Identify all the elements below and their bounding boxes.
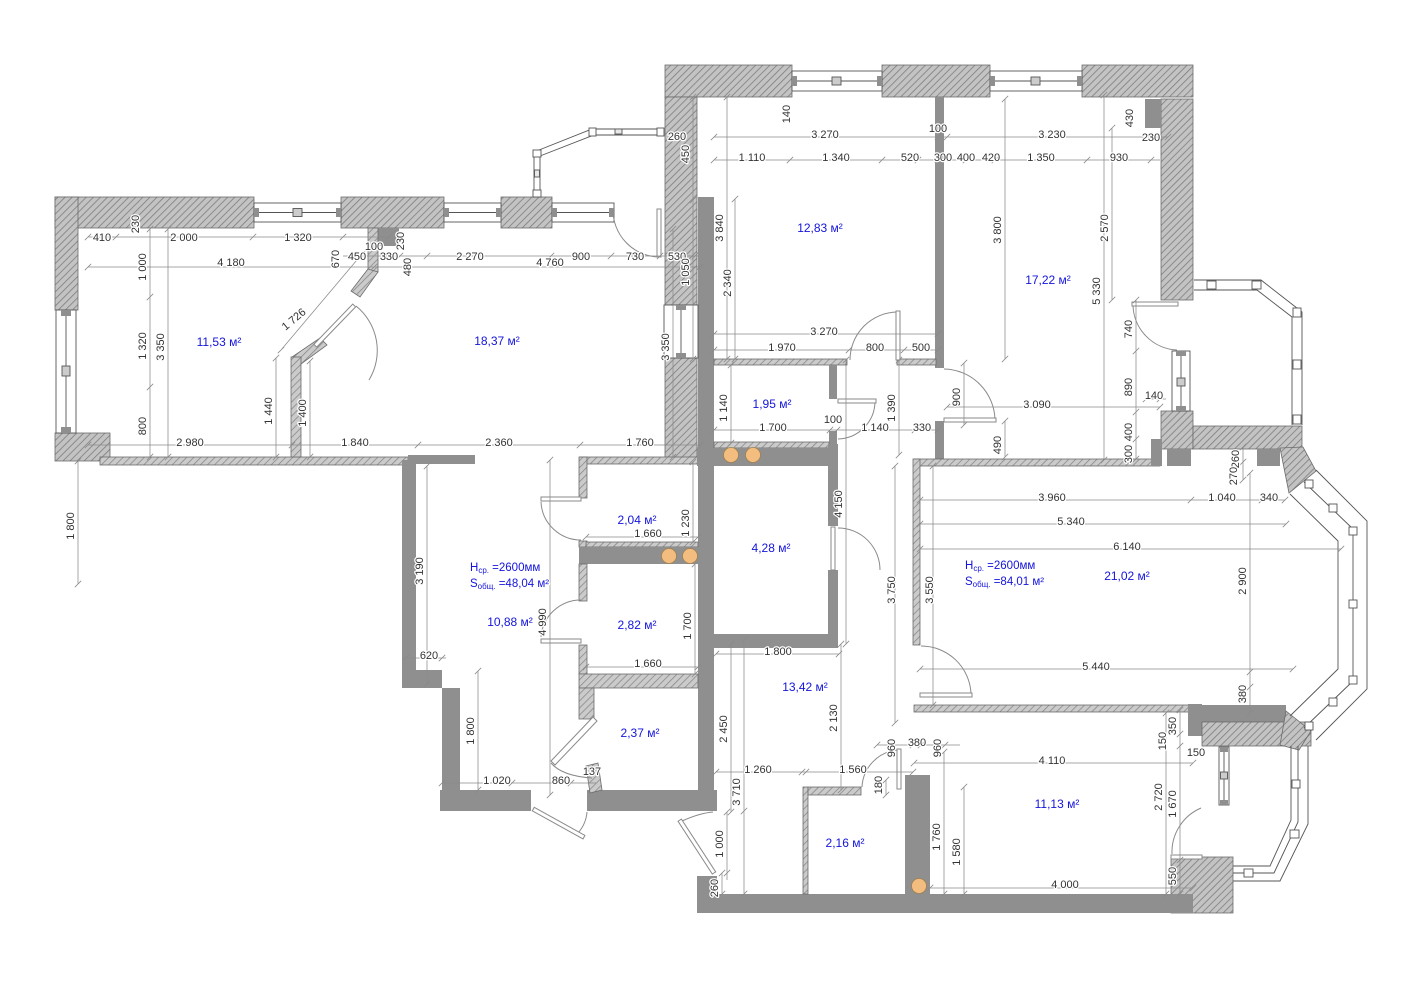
svg-text:900: 900	[572, 251, 590, 263]
svg-text:330: 330	[380, 251, 398, 263]
svg-text:930: 930	[1110, 152, 1128, 164]
svg-text:2 980: 2 980	[176, 437, 204, 449]
svg-text:330: 330	[913, 422, 931, 434]
svg-text:1 230: 1 230	[680, 509, 692, 537]
svg-text:860: 860	[552, 775, 570, 787]
svg-text:1 800: 1 800	[65, 512, 77, 540]
svg-text:2 360: 2 360	[485, 437, 513, 449]
svg-text:4,28 м²: 4,28 м²	[752, 541, 791, 555]
svg-text:4 760: 4 760	[536, 257, 564, 269]
svg-text:3 960: 3 960	[1038, 492, 1066, 504]
svg-text:4 150: 4 150	[833, 490, 845, 518]
svg-text:400: 400	[1123, 423, 1135, 441]
svg-text:1 970: 1 970	[768, 342, 796, 354]
svg-text:260: 260	[709, 879, 721, 897]
svg-text:1 140: 1 140	[861, 422, 889, 434]
svg-text:1 320: 1 320	[137, 332, 149, 360]
svg-text:380: 380	[1237, 685, 1249, 703]
svg-text:1 840: 1 840	[341, 437, 369, 449]
svg-text:1 800: 1 800	[764, 646, 792, 658]
svg-text:2 450: 2 450	[718, 715, 730, 743]
svg-text:100: 100	[824, 414, 842, 426]
svg-text:3 550: 3 550	[924, 576, 936, 604]
svg-text:740: 740	[1123, 320, 1135, 338]
svg-text:1 660: 1 660	[634, 658, 662, 670]
svg-text:5 340: 5 340	[1057, 516, 1085, 528]
svg-text:1 040: 1 040	[1208, 492, 1236, 504]
svg-text:2 130: 2 130	[828, 704, 840, 732]
svg-text:1 340: 1 340	[822, 152, 850, 164]
svg-text:410: 410	[93, 232, 111, 244]
svg-text:2 000: 2 000	[170, 232, 198, 244]
svg-text:340: 340	[1260, 492, 1278, 504]
svg-text:1 390: 1 390	[886, 394, 898, 422]
svg-text:3 840: 3 840	[714, 214, 726, 242]
svg-text:12,83 м²: 12,83 м²	[797, 221, 843, 235]
svg-text:1 700: 1 700	[682, 612, 694, 640]
svg-text:1 560: 1 560	[839, 764, 867, 776]
svg-text:1 050: 1 050	[680, 258, 692, 286]
svg-text:620: 620	[420, 650, 438, 662]
svg-text:6 140: 6 140	[1113, 541, 1141, 553]
svg-text:21,02 м²: 21,02 м²	[1104, 569, 1150, 583]
svg-text:3 270: 3 270	[810, 326, 838, 338]
svg-text:2 720: 2 720	[1153, 783, 1165, 811]
svg-text:300: 300	[934, 152, 952, 164]
svg-text:800: 800	[137, 417, 149, 435]
svg-text:3 190: 3 190	[414, 557, 426, 585]
svg-text:800: 800	[866, 342, 884, 354]
svg-text:480: 480	[402, 258, 414, 276]
svg-text:3 800: 3 800	[992, 216, 1004, 244]
svg-text:3 090: 3 090	[1023, 399, 1051, 411]
svg-text:3 710: 3 710	[731, 778, 743, 806]
svg-text:2,82 м²: 2,82 м²	[618, 618, 657, 632]
svg-text:1 700: 1 700	[759, 422, 787, 434]
svg-text:1 400: 1 400	[297, 399, 309, 427]
svg-text:1 670: 1 670	[1167, 790, 1179, 818]
svg-text:2 270: 2 270	[456, 251, 484, 263]
svg-text:230: 230	[130, 215, 142, 233]
svg-text:11,13 м²: 11,13 м²	[1035, 797, 1080, 811]
svg-text:1 110: 1 110	[739, 152, 766, 164]
svg-text:10,88 м²: 10,88 м²	[487, 615, 533, 629]
svg-text:430: 430	[1124, 109, 1136, 127]
svg-text:400: 400	[957, 152, 975, 164]
svg-text:270: 270	[1228, 467, 1240, 485]
svg-text:5 330: 5 330	[1091, 277, 1103, 305]
svg-text:2,16 м²: 2,16 м²	[826, 836, 865, 850]
svg-text:2 340: 2 340	[722, 269, 734, 297]
svg-text:1 350: 1 350	[1027, 152, 1055, 164]
svg-text:490: 490	[992, 436, 1004, 454]
svg-text:960: 960	[886, 739, 898, 757]
svg-text:17,22 м²: 17,22 м²	[1025, 273, 1071, 287]
svg-text:380: 380	[908, 737, 926, 749]
svg-text:5 440: 5 440	[1082, 661, 1110, 673]
svg-text:1 800: 1 800	[465, 717, 477, 745]
svg-text:13,42 м²: 13,42 м²	[782, 680, 828, 694]
svg-text:1 260: 1 260	[744, 764, 772, 776]
svg-text:3 350: 3 350	[155, 333, 167, 361]
svg-text:670: 670	[330, 250, 342, 268]
svg-text:1 580: 1 580	[951, 838, 963, 866]
svg-text:230: 230	[1142, 132, 1160, 144]
svg-text:2 900: 2 900	[1237, 567, 1249, 595]
svg-text:1 320: 1 320	[284, 232, 312, 244]
svg-text:1 140: 1 140	[718, 394, 730, 422]
svg-text:4 180: 4 180	[217, 257, 245, 269]
svg-text:300: 300	[1123, 445, 1135, 463]
svg-text:450: 450	[680, 145, 692, 163]
svg-text:4 110: 4 110	[1039, 755, 1066, 767]
svg-text:260: 260	[668, 131, 686, 143]
svg-text:450: 450	[348, 251, 366, 263]
svg-text:180: 180	[873, 776, 885, 794]
svg-text:230: 230	[395, 232, 407, 250]
svg-text:3 750: 3 750	[886, 576, 898, 604]
svg-text:150: 150	[1157, 732, 1169, 750]
svg-text:730: 730	[626, 251, 644, 263]
svg-text:11,53 м²: 11,53 м²	[197, 335, 242, 349]
svg-text:137: 137	[583, 766, 601, 778]
svg-text:550: 550	[1167, 867, 1179, 885]
svg-text:4 000: 4 000	[1051, 879, 1079, 891]
svg-text:1,95 м²: 1,95 м²	[753, 397, 792, 411]
svg-text:3 270: 3 270	[811, 129, 839, 141]
svg-text:140: 140	[781, 105, 793, 123]
svg-text:2,37 м²: 2,37 м²	[621, 726, 660, 740]
svg-text:18,37 м²: 18,37 м²	[474, 334, 520, 348]
svg-text:1 760: 1 760	[931, 823, 943, 851]
svg-text:4 990: 4 990	[537, 608, 549, 636]
svg-text:960: 960	[932, 739, 944, 757]
svg-text:1 020: 1 020	[483, 775, 511, 787]
svg-text:1 000: 1 000	[137, 253, 149, 281]
svg-text:100: 100	[929, 123, 947, 135]
svg-text:2,04 м²: 2,04 м²	[618, 513, 657, 527]
svg-text:890: 890	[1123, 378, 1135, 396]
svg-text:1 760: 1 760	[626, 437, 654, 449]
svg-text:520: 520	[901, 152, 919, 164]
svg-text:900: 900	[951, 388, 963, 406]
svg-text:1 000: 1 000	[714, 830, 726, 858]
svg-text:3 230: 3 230	[1038, 129, 1066, 141]
svg-text:1 660: 1 660	[634, 528, 662, 540]
svg-text:420: 420	[982, 152, 1000, 164]
svg-text:3 350: 3 350	[660, 333, 672, 361]
svg-text:1 440: 1 440	[263, 397, 275, 425]
svg-text:2 570: 2 570	[1099, 214, 1111, 242]
svg-text:500: 500	[912, 342, 930, 354]
svg-text:260: 260	[1230, 450, 1242, 468]
svg-text:140: 140	[1145, 390, 1163, 402]
svg-text:150: 150	[1187, 747, 1205, 759]
